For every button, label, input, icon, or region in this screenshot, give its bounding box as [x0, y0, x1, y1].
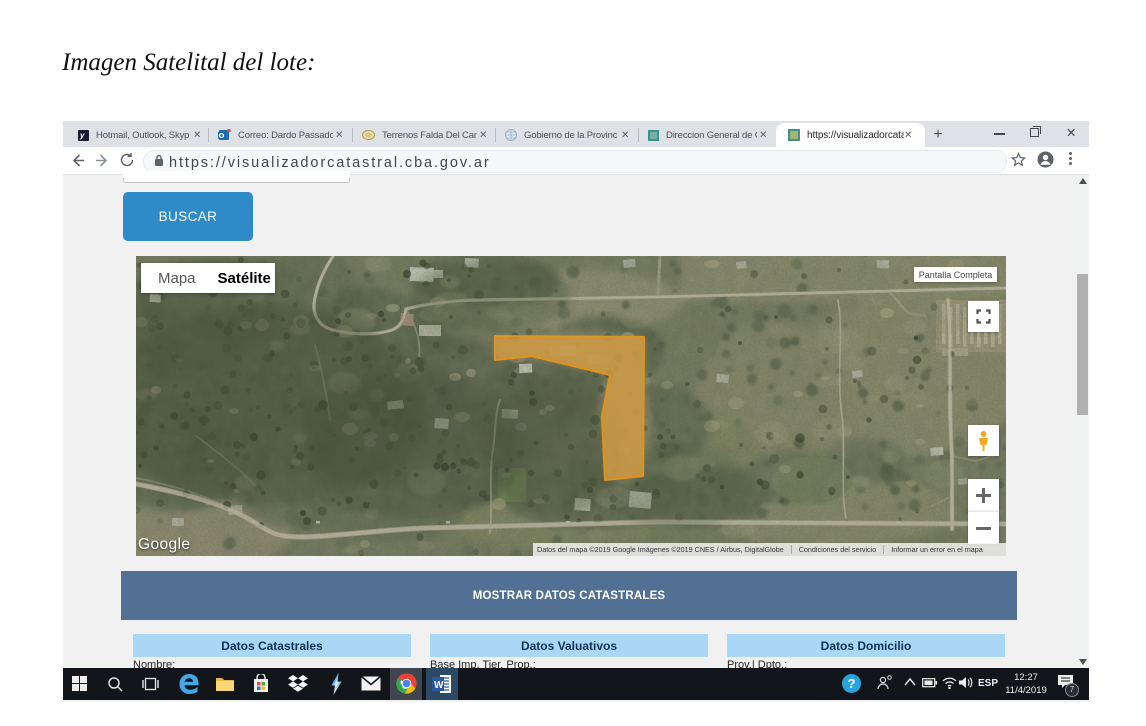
svg-text:W: W [434, 680, 444, 691]
